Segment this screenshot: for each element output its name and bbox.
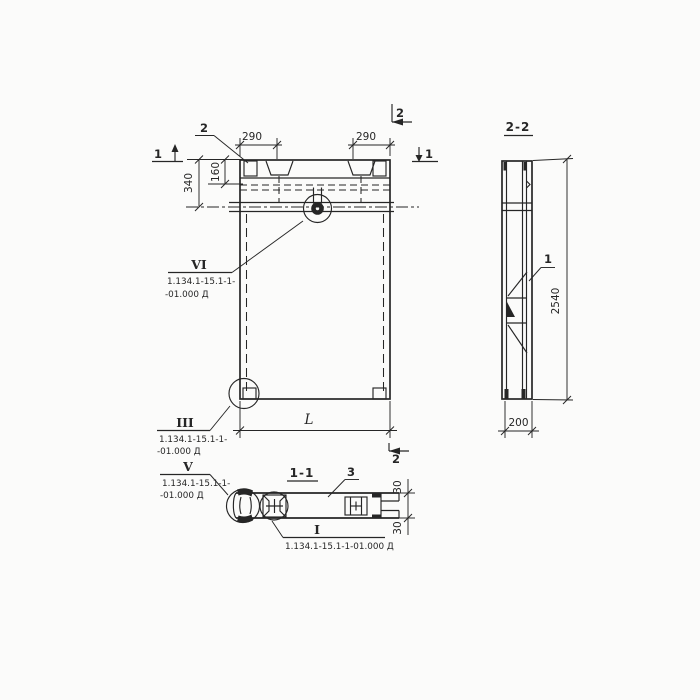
dimension-160: 160: [208, 156, 243, 189]
callout-i-numeral: I: [314, 522, 320, 537]
plan-view-1-1: 1-1 3: [227, 465, 416, 535]
section-view-2-2: 2-2 1 2540: [498, 120, 573, 438]
dim-290-left-text: 290: [242, 131, 262, 143]
section-anchor-bottom-right: [522, 389, 526, 399]
section-ref-1-text: 1: [544, 252, 552, 266]
section-marker-1-right: 1: [412, 147, 438, 162]
plan-anchor-top: [372, 494, 381, 498]
anchor-bottom-right: [373, 388, 386, 399]
callout-iii-numeral: III: [176, 415, 194, 430]
callout-i-doc: 1.134.1-15.1-1-01.000 Д: [285, 542, 394, 552]
callout-iii-doc-line1: 1.134.1-15.1-1-: [159, 435, 227, 445]
dimension-290-left: 290: [235, 131, 282, 159]
dimension-30-top: 30: [392, 479, 415, 506]
end-fitting-jaw-left: [240, 497, 241, 514]
section-anchor-bottom-left: [505, 389, 509, 399]
drawing-sheet: 290 290 160 340 L 1: [0, 0, 700, 700]
dim-160-text: 160: [210, 162, 222, 182]
section-gusset: [507, 301, 516, 317]
lifting-loop: [314, 205, 322, 213]
dim-30-top-text: 30: [392, 480, 404, 493]
dim-30-bottom-text: 30: [392, 521, 404, 534]
panel-outline: [240, 160, 390, 399]
callout-vi-doc-line2: -01.000 Д: [165, 290, 209, 300]
section-marker-2-bottom: 2: [389, 443, 409, 466]
recess-left: [266, 161, 293, 175]
callout-v-doc-line2: -01.000 Д: [160, 491, 204, 501]
dim-200-text: 200: [508, 417, 528, 429]
section-2-top-text: 2: [396, 106, 404, 120]
section-anchor-top-right: [524, 162, 528, 171]
callout-v: V 1.134.1-15.1-1- -01.000 Д: [160, 459, 230, 501]
dim-2540-text: 2540: [550, 288, 562, 315]
recess-right: [348, 161, 375, 175]
plan-left-end: [233, 493, 236, 518]
callout-i: I 1.134.1-15.1-1-01.000 Д: [272, 521, 394, 552]
callout-iii-doc-line2: -01.000 Д: [157, 447, 201, 457]
technical-drawing: 290 290 160 340 L 1: [0, 0, 700, 700]
section-title: 2-2: [506, 120, 531, 134]
detail-circle-vi: [304, 195, 332, 223]
anchor-bottom-left: [243, 388, 256, 399]
detail-circle-iii: [229, 379, 259, 409]
callout-v-doc-line1: 1.134.1-15.1-1-: [162, 479, 230, 489]
callout-v-numeral: V: [182, 459, 193, 474]
section-1-left-text: 1: [154, 147, 162, 161]
section-1-right-text: 1: [425, 147, 433, 161]
anchor-top-left: [244, 161, 257, 176]
section-anchor-top-left: [504, 162, 508, 171]
anchor-top-right: [373, 161, 386, 176]
dimension-2540: 2540: [533, 155, 573, 404]
dimension-200: 200: [498, 401, 539, 438]
plan-anchor-bottom: [372, 515, 381, 519]
dim-290-right-text: 290: [356, 131, 376, 143]
dimension-290-right: 290: [348, 131, 395, 159]
dim-340-text: 340: [183, 173, 195, 193]
plan-title: 1-1: [290, 466, 315, 480]
dim-length-text: L: [304, 412, 314, 428]
plan-ref-3-text: 3: [347, 465, 355, 479]
callout-vi-numeral: VI: [190, 257, 207, 272]
dimension-L: L: [233, 401, 397, 438]
callout-vi-doc-line1: 1.134.1-15.1-1-: [167, 277, 235, 287]
section-2-bottom-text: 2: [392, 452, 400, 466]
section-marker-2-top: 2: [392, 104, 412, 126]
end-fitting-jaw-right: [250, 497, 251, 514]
callout-iii: III 1.134.1-15.1-1- -01.000 Д: [157, 406, 230, 457]
callout-vi: VI 1.134.1-15.1-1- -01.000 Д: [165, 221, 303, 300]
anchor-ref-text: 2: [200, 121, 208, 135]
section-marker-1-left: 1: [152, 144, 183, 162]
